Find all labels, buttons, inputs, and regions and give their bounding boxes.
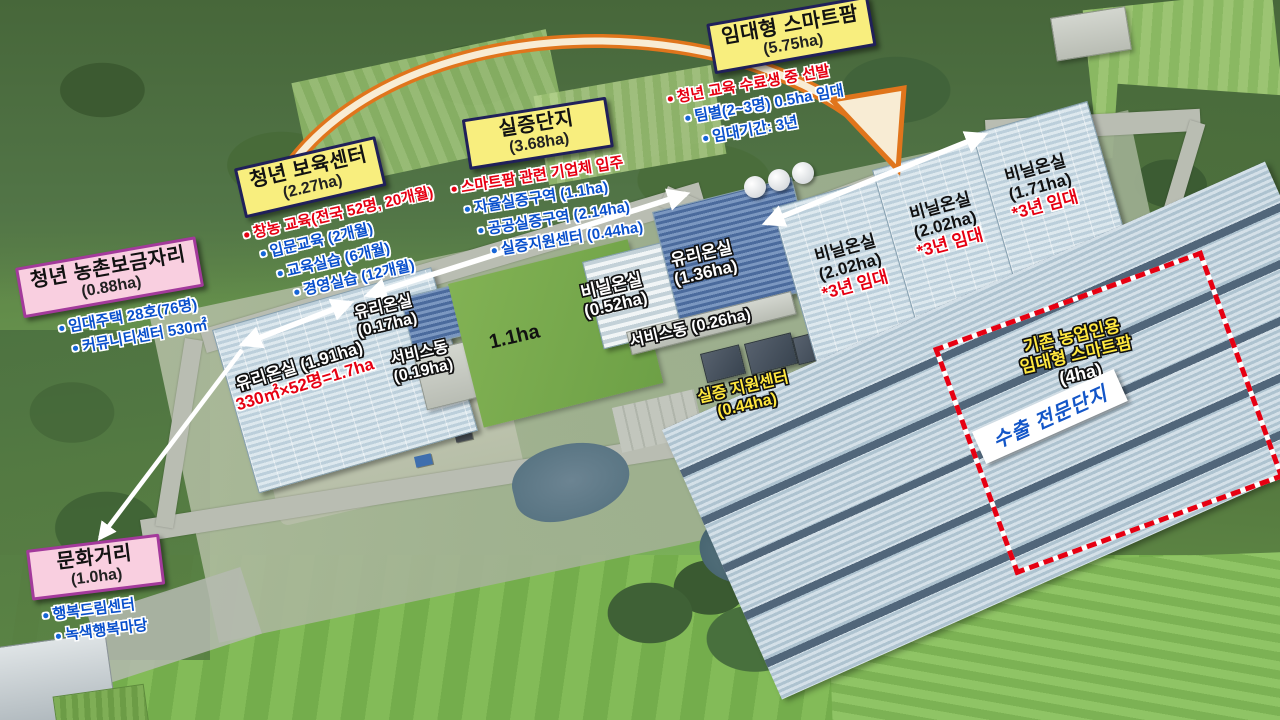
smartfarm-sitemap: 임대형 스마트팜 (5.75ha) 청년 교육 수료생 중 선발 팀별(2~3명… [0, 0, 1280, 720]
storage-tank [768, 169, 790, 191]
callout-culture-street: 문화거리 (1.0ha) 행복드림센터 녹색행복마당 [26, 534, 171, 651]
storage-tank [744, 176, 766, 198]
storage-tank [792, 162, 814, 184]
callout-demo-complex: 실증단지 (3.68ha) 스마트팜 관련 기업체 입주 자율실증구역 (1.1… [440, 94, 645, 268]
